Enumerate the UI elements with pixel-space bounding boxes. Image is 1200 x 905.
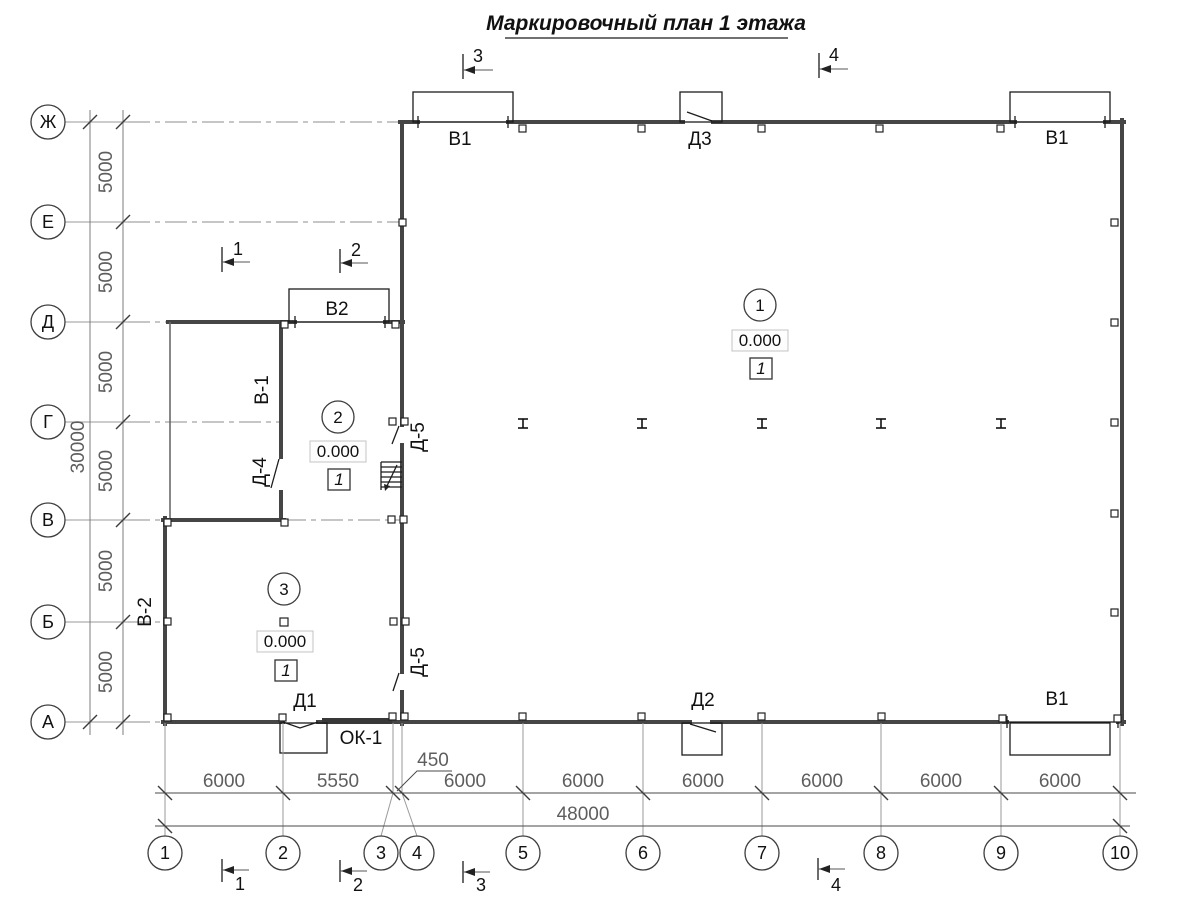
- label-door-d2: Д2: [691, 690, 714, 711]
- axis-col-7: 8: [876, 843, 886, 863]
- section-bottom-1: 1: [222, 859, 249, 894]
- room3-finish: 1: [281, 661, 290, 680]
- section-mid-2: 2: [340, 240, 368, 273]
- axis-col-5: 6: [638, 843, 648, 863]
- axis-row-6: А: [42, 712, 54, 732]
- axis-col-6: 7: [757, 843, 767, 863]
- dim-col-4: 6000: [562, 771, 604, 792]
- dim-row-0: 5000: [96, 151, 117, 193]
- dim-col-7: 6000: [920, 771, 962, 792]
- row-axis-bubbles: Ж Е Д Г В Б А: [31, 105, 65, 739]
- door-d3-leaf: [687, 112, 712, 121]
- svg-text:1: 1: [233, 239, 243, 259]
- gate-openings: [295, 116, 1118, 728]
- door-d4-leaf: [271, 459, 279, 488]
- room1-number: 1: [755, 296, 764, 315]
- dim-row-total: 30000: [68, 421, 89, 474]
- room3-column: [280, 618, 288, 626]
- dim-row-1: 5000: [96, 251, 117, 293]
- dim-col-2: 450: [417, 750, 449, 771]
- dim-col-0: 6000: [203, 771, 245, 792]
- label-door-d1: Д1: [293, 691, 316, 712]
- label-door-top: Д3: [688, 129, 711, 150]
- room2-elevation: 0.000: [317, 442, 360, 461]
- door-d5-upper-leaf: [392, 426, 399, 444]
- dim-row-4: 5000: [96, 550, 117, 592]
- section-markers: 3 4 1 2 1 2 3: [222, 45, 848, 895]
- bottom-grid-lines: [165, 723, 1120, 836]
- axis-col-2: 3: [376, 843, 386, 863]
- room-tag-2: 2 0.000 1: [310, 401, 366, 490]
- room3-number: 3: [279, 580, 288, 599]
- room-tag-3: 3 0.000 1: [257, 573, 313, 681]
- drawing-sheet: Маркировочный план 1 этажа 5000 5000 500…: [0, 0, 1200, 900]
- room3-elevation: 0.000: [264, 632, 307, 651]
- label-door-d5-lower: Д-5: [408, 647, 429, 677]
- axis-row-2: Д: [42, 312, 54, 332]
- svg-text:2: 2: [351, 240, 361, 260]
- room2-finish: 1: [334, 470, 343, 489]
- svg-text:3: 3: [473, 46, 483, 66]
- axis-row-1: Е: [42, 212, 54, 232]
- svg-text:1: 1: [235, 874, 245, 894]
- dim-col-1: 5550: [317, 771, 359, 792]
- door-d5-lower-leaf: [393, 673, 399, 691]
- hall-columns: [518, 419, 1006, 428]
- section-top-3: 3: [463, 46, 493, 79]
- label-gate-top-right: В1: [1045, 128, 1068, 149]
- col-axis-bubbles: 1 2 3 4 5 6 7 8 9 10: [148, 836, 1137, 870]
- section-bottom-4: 4: [818, 858, 845, 895]
- svg-text:2: 2: [353, 875, 363, 895]
- floor-plan-svg: Маркировочный план 1 этажа 5000 5000 500…: [0, 0, 1200, 900]
- axis-col-0: 1: [160, 843, 170, 863]
- dim-col-8: 6000: [1039, 771, 1081, 792]
- svg-text:4: 4: [831, 875, 841, 895]
- room1-elevation: 0.000: [739, 331, 782, 350]
- dim-col-total: 48000: [557, 804, 610, 825]
- label-wall-left: В-2: [135, 597, 156, 627]
- label-door-d4: Д-4: [250, 457, 271, 487]
- dim-row-2: 5000: [96, 351, 117, 393]
- section-bottom-2: 2: [340, 860, 367, 895]
- axis-row-5: Б: [42, 612, 54, 632]
- axis-row-0: Ж: [40, 112, 57, 132]
- label-window-ok1: ОК-1: [340, 728, 383, 749]
- bottom-dimension-lines: [155, 771, 1136, 833]
- room1-finish: 1: [756, 359, 765, 378]
- door-d2-leaf: [690, 724, 716, 732]
- section-bottom-3: 3: [463, 861, 490, 895]
- label-wall-inner: В-1: [252, 375, 273, 405]
- label-door-d5-upper: Д-5: [408, 422, 429, 452]
- dim-row-5: 5000: [96, 651, 117, 693]
- section-top-4: 4: [819, 45, 848, 78]
- axis-col-8: 9: [996, 843, 1006, 863]
- label-gate-annex: В2: [325, 299, 348, 320]
- dim-col-6: 6000: [801, 771, 843, 792]
- page-title: Маркировочный план 1 этажа: [486, 12, 806, 35]
- element-labels: В1 Д3 В1 В2 В-1 Д-4 Д-5 Д-5 В-2 Д1 ОК-1 …: [135, 128, 1069, 749]
- room2-number: 2: [333, 408, 342, 427]
- axis-row-3: Г: [43, 412, 53, 432]
- dim-col-5: 6000: [682, 771, 724, 792]
- axis-col-9: 10: [1110, 843, 1130, 863]
- svg-text:3: 3: [476, 875, 486, 895]
- label-gate-top-left: В1: [448, 129, 471, 150]
- label-gate-bottom-right: В1: [1045, 689, 1068, 710]
- axis-col-4: 5: [518, 843, 528, 863]
- bottom-dimension-texts: 6000 5550 450 6000 6000 6000 6000 6000 6…: [203, 750, 1081, 825]
- section-mid-1: 1: [222, 239, 250, 272]
- dim-col-3: 6000: [444, 771, 486, 792]
- stairs: [381, 462, 402, 491]
- axis-col-1: 2: [278, 843, 288, 863]
- svg-text:4: 4: [829, 45, 839, 65]
- room-tag-1: 1 0.000 1: [732, 289, 788, 379]
- dim-row-3: 5000: [96, 450, 117, 492]
- axis-row-4: В: [42, 510, 54, 530]
- axis-col-3: 4: [412, 843, 422, 863]
